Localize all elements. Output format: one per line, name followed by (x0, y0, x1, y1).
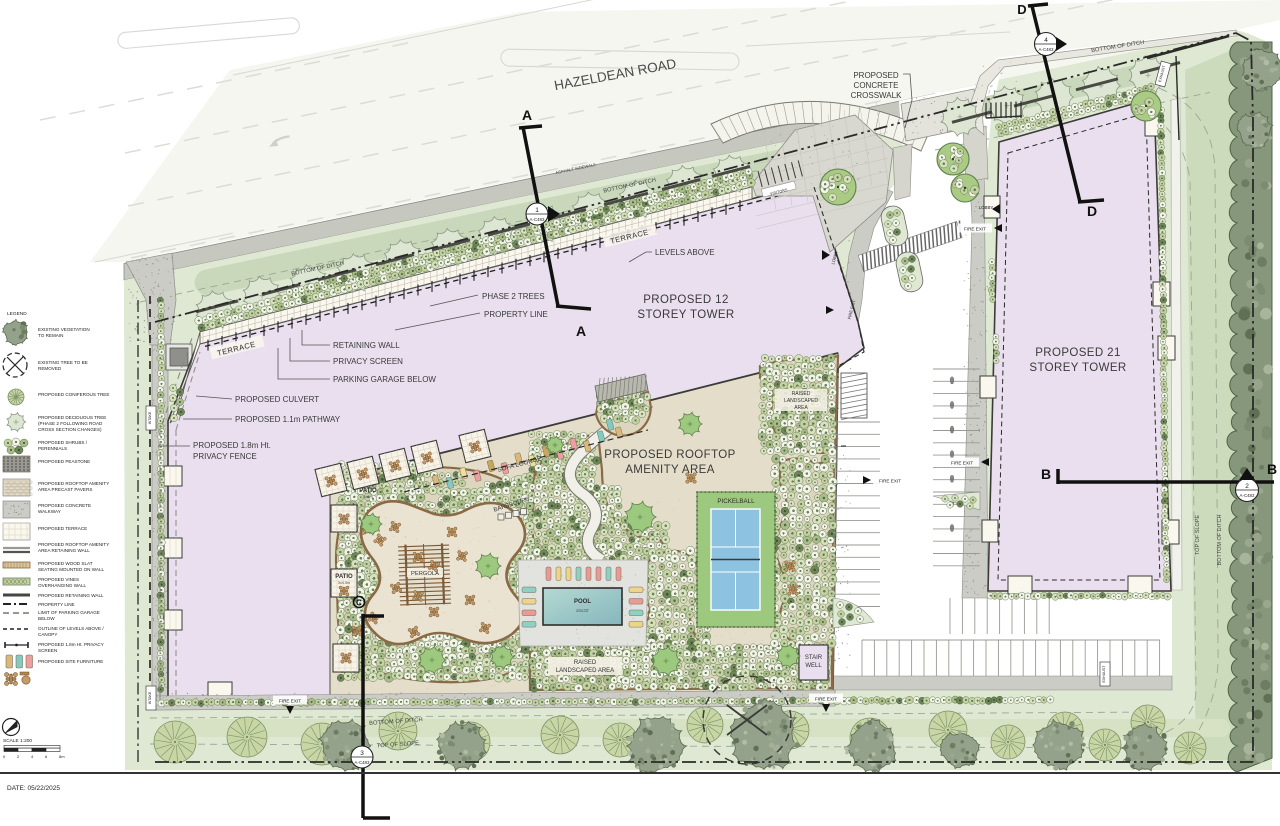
svg-text:4: 4 (1044, 37, 1048, 44)
svg-text:EXISTING VEGETATION: EXISTING VEGETATION (38, 327, 90, 332)
svg-text:A-C483: A-C483 (1240, 493, 1255, 498)
svg-text:CROSSWALK: CROSSWALK (851, 91, 902, 100)
svg-text:FIRE EXIT: FIRE EXIT (951, 461, 973, 466)
svg-text:D: D (1017, 2, 1026, 17)
svg-text:PROPOSED 12: PROPOSED 12 (643, 294, 729, 306)
svg-text:LANDSCAPED: LANDSCAPED (784, 398, 818, 404)
svg-text:WALKWAY: WALKWAY (38, 509, 61, 514)
svg-text:8m: 8m (59, 754, 65, 759)
svg-text:PROPOSED SHRUBS /: PROPOSED SHRUBS / (38, 440, 88, 445)
svg-text:BOTTOM OF DITCH: BOTTOM OF DITCH (1217, 515, 1223, 566)
svg-text:PERGOLA: PERGOLA (411, 571, 439, 577)
svg-text:FIRE EXIT: FIRE EXIT (279, 699, 301, 704)
svg-text:PROPOSED VINES: PROPOSED VINES (38, 577, 79, 582)
svg-text:3x4.5m: 3x4.5m (338, 581, 350, 585)
svg-text:RAISED: RAISED (792, 391, 811, 397)
svg-text:PERENNIALS: PERENNIALS (38, 446, 67, 451)
svg-text:B: B (1041, 466, 1051, 482)
svg-text:BELOW: BELOW (38, 616, 55, 621)
svg-text:AREA: AREA (794, 405, 808, 411)
svg-text:OUTLINE OF LEVELS ABOVE /: OUTLINE OF LEVELS ABOVE / (38, 626, 104, 631)
svg-text:PROPOSED 21: PROPOSED 21 (1035, 347, 1121, 359)
svg-text:RAISED: RAISED (574, 660, 597, 666)
svg-text:A-C483: A-C483 (1039, 47, 1054, 52)
svg-text:REMOVED: REMOVED (38, 366, 62, 371)
svg-text:PARKING GARAGE BELOW: PARKING GARAGE BELOW (333, 375, 436, 384)
svg-text:LEGEND: LEGEND (7, 311, 27, 317)
svg-text:PROPERTY LINE: PROPERTY LINE (38, 602, 75, 607)
svg-text:PROPOSED 1.8m Ht.: PROPOSED 1.8m Ht. (193, 441, 271, 450)
svg-text:WELL: WELL (805, 663, 822, 669)
svg-text:PRIVACY FENCE: PRIVACY FENCE (193, 452, 257, 461)
svg-text:AREA PRECAST PAVERS: AREA PRECAST PAVERS (38, 487, 92, 492)
svg-text:D: D (1087, 203, 1097, 219)
svg-text:PROPOSED CONCRETE: PROPOSED CONCRETE (38, 503, 91, 508)
svg-text:FIRE EXIT: FIRE EXIT (879, 479, 901, 484)
svg-text:PHASE 2 TREES: PHASE 2 TREES (482, 292, 545, 301)
svg-text:A: A (576, 323, 586, 339)
svg-text:PROPOSED WOOD SLAT: PROPOSED WOOD SLAT (38, 561, 93, 566)
svg-text:EXHAUST: EXHAUST (1102, 665, 1106, 683)
svg-text:PROPOSED ROOFTOP: PROPOSED ROOFTOP (604, 449, 735, 461)
svg-text:PROPOSED SITE FURNITURE: PROPOSED SITE FURNITURE (38, 659, 103, 664)
svg-text:16x32': 16x32' (576, 608, 590, 613)
svg-text:INTAKE: INTAKE (148, 411, 152, 424)
svg-text:C: C (356, 599, 362, 608)
svg-text:3x2m: 3x2m (363, 495, 372, 499)
svg-text:PROPOSED DECIDUOUS TREE: PROPOSED DECIDUOUS TREE (38, 415, 106, 420)
svg-text:STOREY TOWER: STOREY TOWER (637, 309, 734, 321)
svg-text:STOREY TOWER: STOREY TOWER (1029, 362, 1126, 374)
svg-text:FIRE EXIT: FIRE EXIT (964, 227, 986, 232)
svg-text:B: B (1267, 461, 1277, 477)
svg-text:AMENITY AREA: AMENITY AREA (625, 464, 715, 476)
svg-text:PROPOSED CULVERT: PROPOSED CULVERT (235, 395, 319, 404)
svg-text:PROPERTY LINE: PROPERTY LINE (484, 310, 548, 319)
svg-text:3: 3 (360, 750, 364, 757)
svg-text:RETAINING WALL: RETAINING WALL (333, 341, 400, 350)
svg-text:LIMIT OF PARKING GARAGE: LIMIT OF PARKING GARAGE (38, 610, 100, 615)
svg-text:PATIO: PATIO (335, 574, 353, 580)
svg-text:PRIVACY SCREEN: PRIVACY SCREEN (333, 357, 403, 366)
svg-text:INTAKE: INTAKE (148, 691, 152, 704)
svg-text:A: A (522, 107, 532, 123)
svg-text:PROPOSED: PROPOSED (853, 71, 899, 80)
svg-text:TO REMAIN: TO REMAIN (38, 333, 63, 338)
svg-text:SCALE 1:200: SCALE 1:200 (3, 738, 32, 744)
svg-text:OVERHANGING WALL: OVERHANGING WALL (38, 583, 87, 588)
svg-text:POOL: POOL (574, 599, 591, 605)
svg-text:CANOPY: CANOPY (38, 632, 57, 637)
svg-text:1: 1 (535, 207, 539, 214)
svg-text:LANDSCAPED AREA: LANDSCAPED AREA (556, 668, 614, 674)
svg-text:A-C483: A-C483 (530, 217, 545, 222)
svg-text:PROPOSED ROOFTOP AMENITY: PROPOSED ROOFTOP AMENITY (38, 542, 109, 547)
svg-text:PROPOSED PEASTONE: PROPOSED PEASTONE (38, 459, 90, 464)
svg-text:PROPOSED RETAINING WALL: PROPOSED RETAINING WALL (38, 593, 104, 598)
svg-text:PROPOSED 1.8m Ht. PRIVACY: PROPOSED 1.8m Ht. PRIVACY (38, 642, 104, 647)
svg-text:CROSS SECTION CHANGES): CROSS SECTION CHANGES) (38, 427, 102, 432)
svg-text:CONCRETE: CONCRETE (854, 81, 899, 90)
svg-text:A-C483: A-C483 (355, 760, 370, 765)
svg-text:FIRE EXIT: FIRE EXIT (815, 697, 837, 702)
svg-text:(PHASE 2 FOLLOWING ROAD: (PHASE 2 FOLLOWING ROAD (38, 421, 103, 426)
svg-text:DATE: 05/22/2025: DATE: 05/22/2025 (7, 785, 60, 792)
svg-text:PICKELBALL: PICKELBALL (717, 498, 755, 505)
svg-text:2: 2 (1245, 483, 1249, 490)
svg-text:TOP OF SLOPE: TOP OF SLOPE (1195, 515, 1201, 555)
svg-text:EXISTING TREE TO BE: EXISTING TREE TO BE (38, 360, 88, 365)
svg-text:LEVELS ABOVE: LEVELS ABOVE (655, 248, 715, 257)
svg-text:SCREEN: SCREEN (38, 648, 57, 653)
svg-text:STAIR: STAIR (805, 655, 823, 661)
svg-text:PROPOSED ROOFTOP AMENITY: PROPOSED ROOFTOP AMENITY (38, 481, 109, 486)
svg-text:AREA RETAINING WALL: AREA RETAINING WALL (38, 548, 90, 553)
svg-text:PROPOSED TERRACE: PROPOSED TERRACE (38, 526, 87, 531)
svg-text:PROPOSED CONIFEROUS TREE: PROPOSED CONIFEROUS TREE (38, 392, 109, 397)
svg-text:PROPOSED 1.1m PATHWAY: PROPOSED 1.1m PATHWAY (235, 415, 341, 424)
svg-text:LOBBY: LOBBY (979, 205, 994, 210)
svg-text:SEATING MOUNTED ON WALL: SEATING MOUNTED ON WALL (38, 567, 105, 572)
svg-text:PATIO: PATIO (359, 488, 377, 494)
